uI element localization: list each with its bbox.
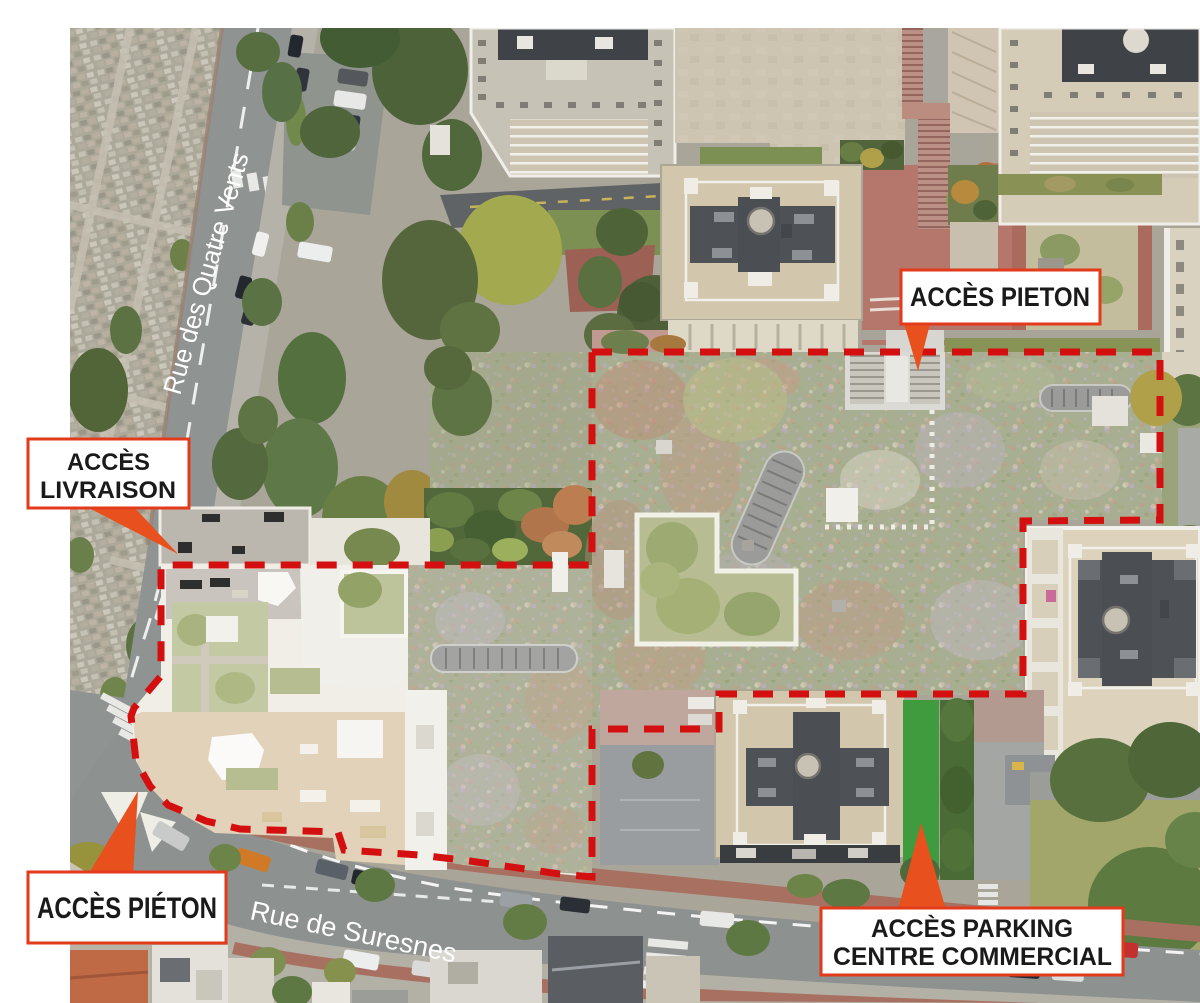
svg-text:LIVRAISON: LIVRAISON bbox=[40, 477, 176, 504]
svg-text:CENTRE COMMERCIAL: CENTRE COMMERCIAL bbox=[833, 943, 1112, 971]
svg-text:ACCÈS PIÉTON: ACCÈS PIÉTON bbox=[37, 891, 217, 925]
svg-text:ACCÈS: ACCÈS bbox=[67, 448, 150, 476]
svg-text:ACCÈS PIETON: ACCÈS PIETON bbox=[910, 281, 1090, 312]
svg-text:ACCÈS PARKING: ACCÈS PARKING bbox=[871, 914, 1073, 943]
